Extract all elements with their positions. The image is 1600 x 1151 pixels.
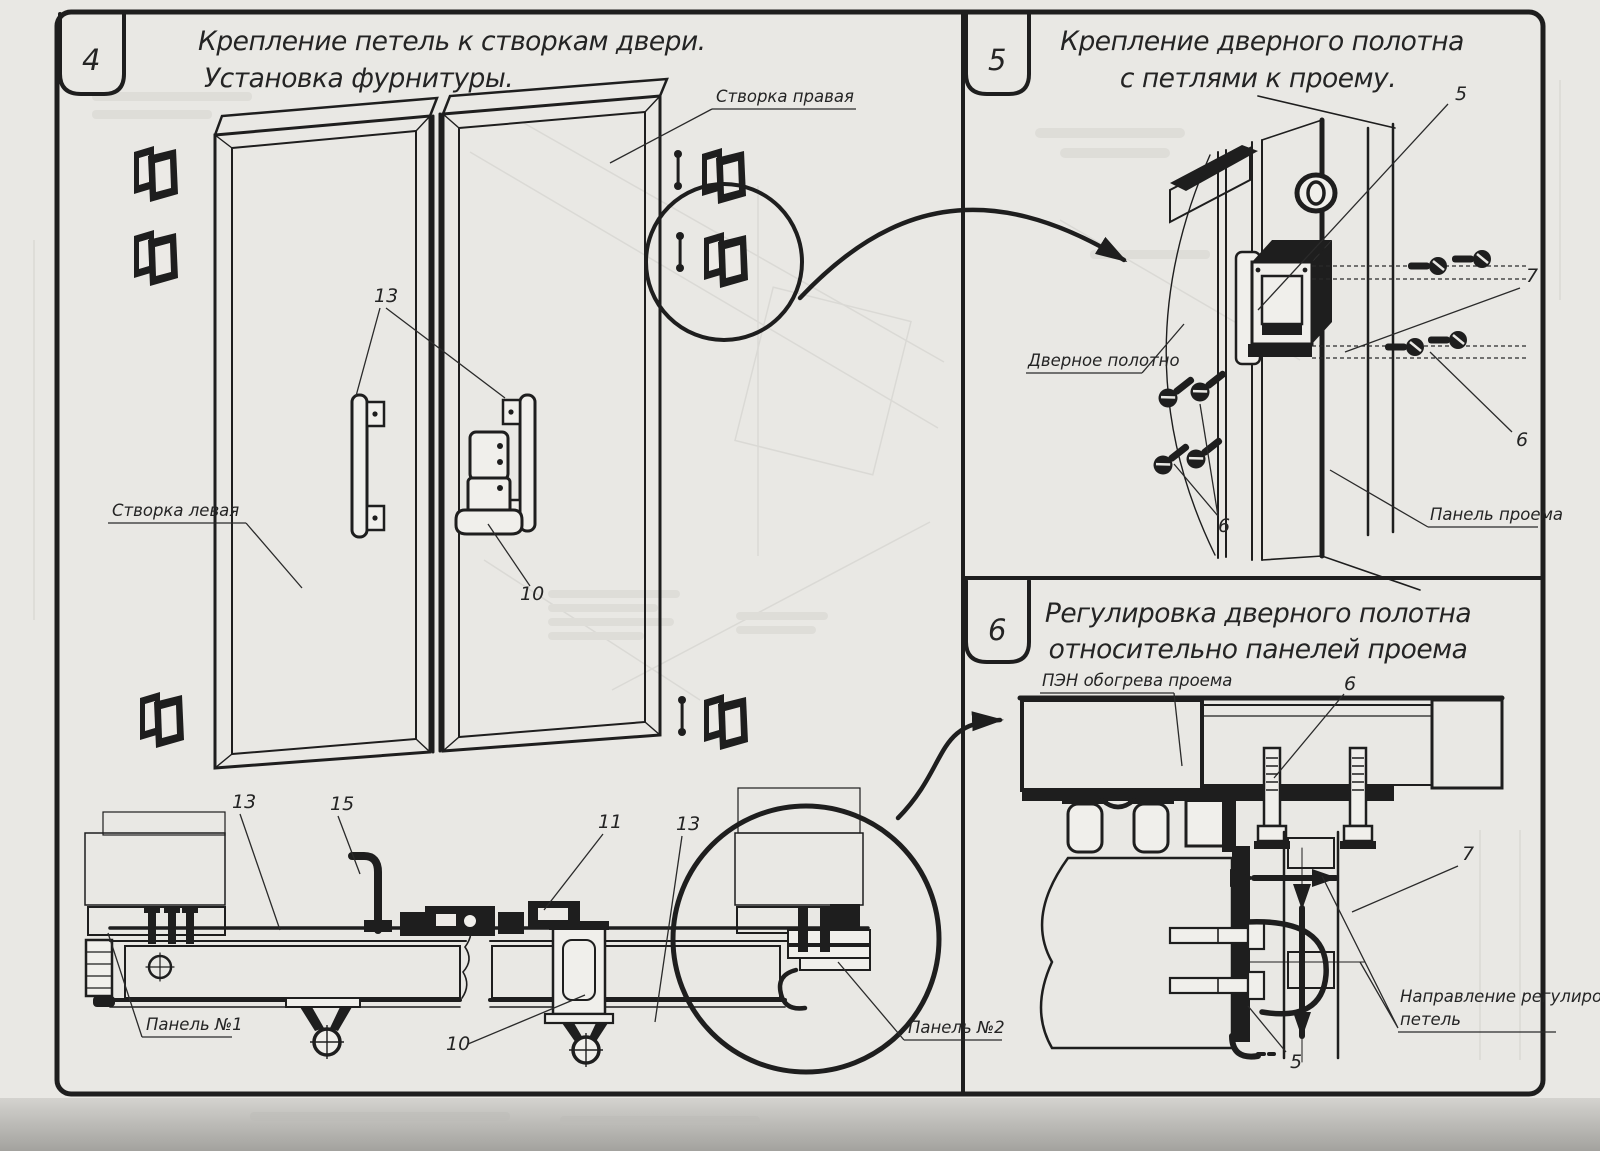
scanned-assembly-drawing: 4 5 6 Крепление петель к створкам двери.… xyxy=(0,0,1600,1151)
panel4-number: 4 xyxy=(82,43,100,77)
panel5-title-line2: с петлями к проему. xyxy=(1120,63,1396,94)
drawing-canvas: 4 5 6 Крепление петель к створкам двери.… xyxy=(0,0,1600,1151)
label-leaf-left: Створка левая xyxy=(112,501,239,520)
callout-7-screws: 7 xyxy=(1526,265,1538,287)
paper-background xyxy=(0,0,1600,1151)
callout-13-handles: 13 xyxy=(374,285,398,307)
callout-6-screws-left: 6 xyxy=(1218,515,1230,537)
panel5-number: 5 xyxy=(988,43,1006,77)
photo-edge-shadow xyxy=(0,1098,1600,1151)
callout-15-section: 15 xyxy=(330,793,354,815)
panel5-title-line1: Крепление дверного полотна xyxy=(1060,26,1464,57)
label-opening-panel: Панель проема xyxy=(1430,505,1563,524)
callout-10-lock: 10 xyxy=(520,583,544,605)
label-pen-heater: ПЭН обогрева проема xyxy=(1042,671,1232,690)
callout-10-section: 10 xyxy=(446,1033,470,1055)
callout-7-hinge: 7 xyxy=(1462,843,1474,865)
fastening-posts xyxy=(144,907,198,944)
callout-11-section: 11 xyxy=(598,811,622,833)
label-adjust-direction-line1: Направление регулировки xyxy=(1400,987,1600,1006)
panel6-number: 6 xyxy=(988,613,1006,647)
label-adjust-direction-line2: петель xyxy=(1400,1010,1461,1029)
hinge-section-cluster xyxy=(1062,792,1236,852)
callout-6-screws-right: 6 xyxy=(1516,429,1528,451)
left-end-profile xyxy=(86,940,115,1007)
label-panel-no2: Панель №2 xyxy=(908,1018,1005,1037)
callout-5-hinge: 5 xyxy=(1455,83,1467,105)
label-door-leaf: Дверное полотно xyxy=(1027,351,1180,370)
panel6-title-line2: относительно панелей проема xyxy=(1049,634,1468,665)
callout-5-hinge-p6: 5 xyxy=(1290,1051,1302,1073)
panel4-title-line1: Крепление петель к створкам двери. xyxy=(198,26,706,57)
callout-6-bolts: 6 xyxy=(1344,673,1356,695)
handle-hole xyxy=(1297,175,1335,211)
panel4-title-line2: Установка фурнитуры. xyxy=(204,63,513,94)
callout-13-section-right: 13 xyxy=(676,813,700,835)
label-leaf-right: Створка правая xyxy=(716,87,854,106)
label-panel-no1: Панель №1 xyxy=(146,1015,243,1034)
callout-13-section-left: 13 xyxy=(232,791,256,813)
panel6-title-line1: Регулировка дверного полотна xyxy=(1045,598,1471,629)
